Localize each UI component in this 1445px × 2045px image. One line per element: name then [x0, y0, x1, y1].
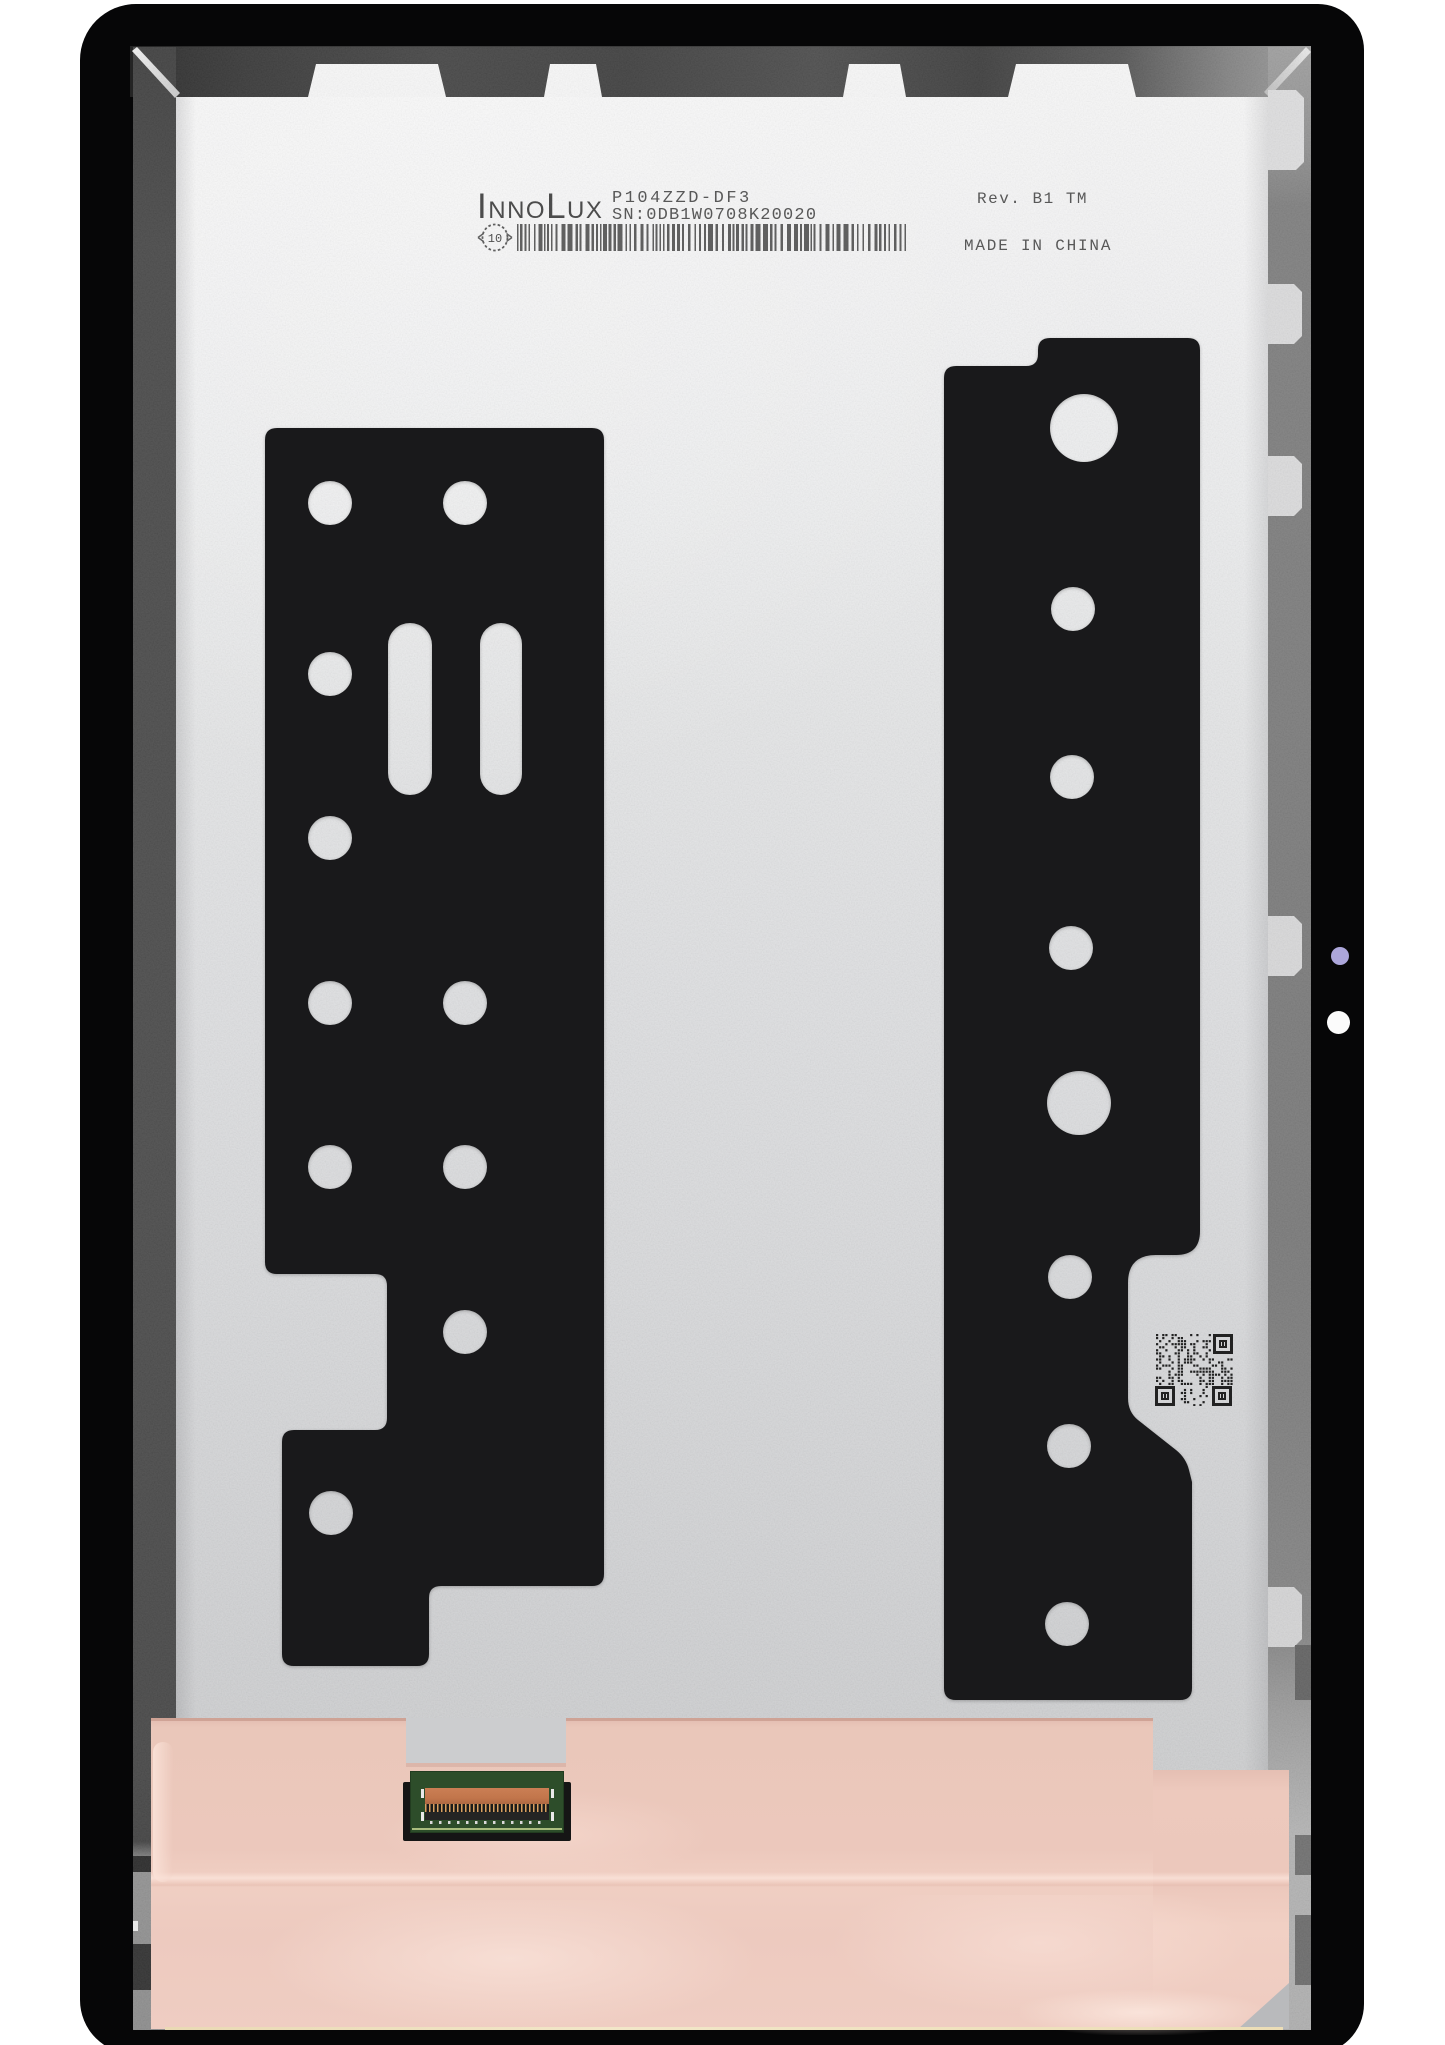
- svg-text:10: 10: [488, 232, 502, 246]
